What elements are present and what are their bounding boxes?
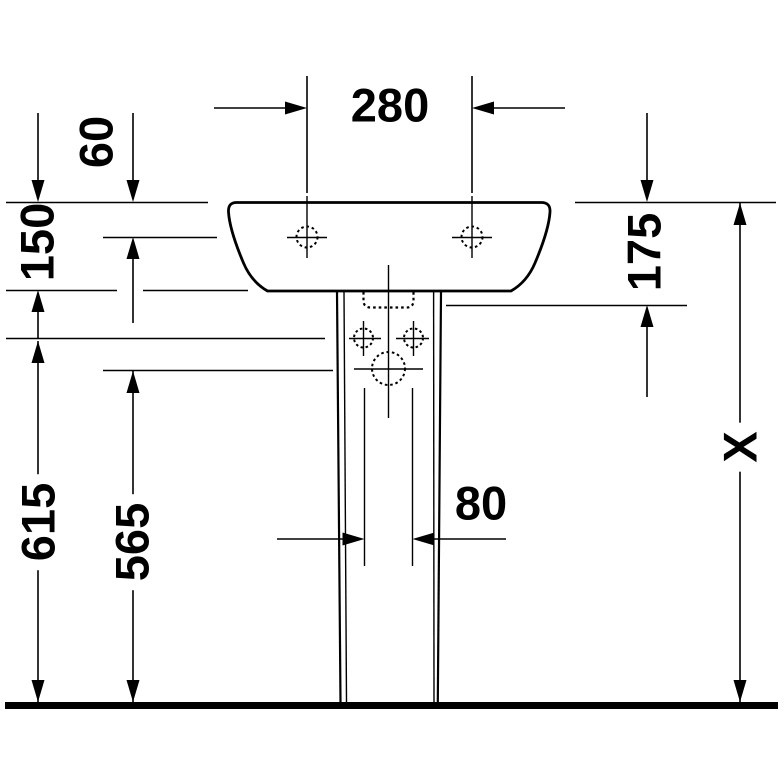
dim-label-60: 60: [73, 116, 120, 168]
floor-line: [5, 702, 778, 709]
basin-outline: [228, 203, 550, 292]
dim-label-175: 175: [621, 213, 668, 291]
dim-label-80: 80: [455, 480, 507, 527]
dim-label-x: X: [717, 422, 764, 471]
dim-label-280: 280: [351, 82, 429, 129]
dim-label-615: 615: [15, 474, 62, 570]
dim-label-150: 150: [14, 203, 61, 281]
fixing-hole-right-dashed: [396, 321, 429, 356]
dim-label-565: 565: [109, 494, 156, 590]
fixing-hole-left-dashed: [349, 321, 381, 356]
dim-80-arrows: [343, 533, 435, 546]
technical-drawing-canvas: 280 60 150 615 565 175 80 X: [0, 0, 784, 784]
